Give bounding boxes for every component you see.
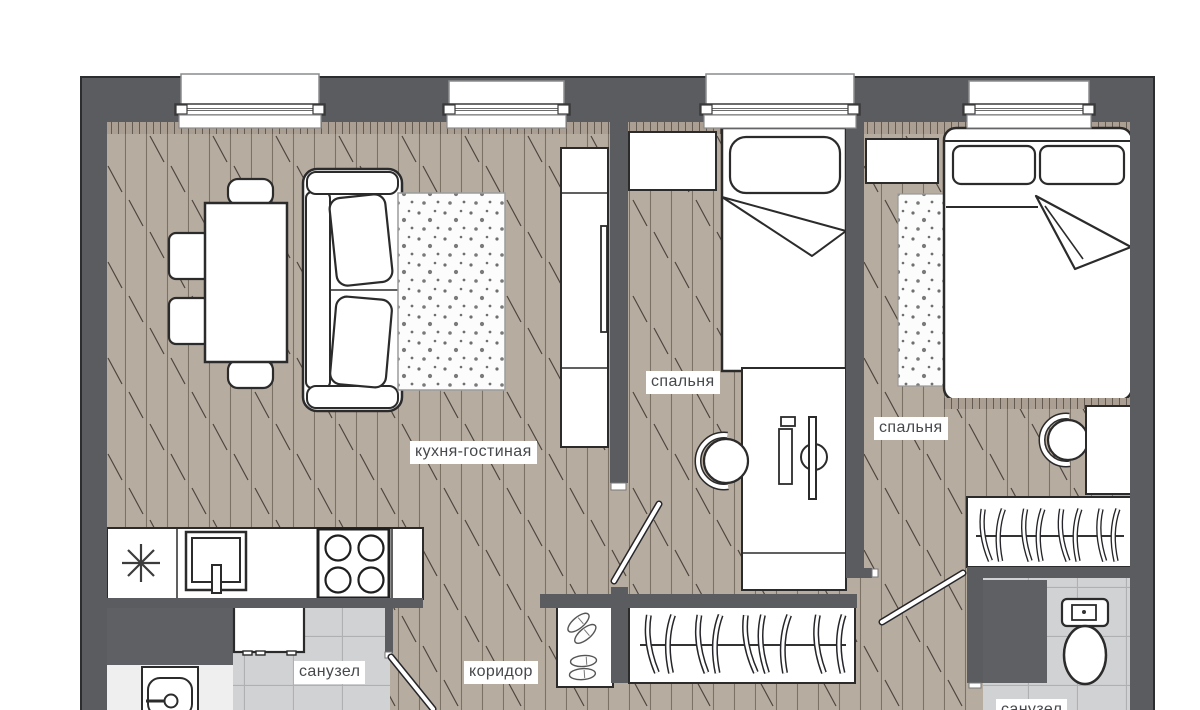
utility-block	[983, 580, 1047, 683]
wall-right	[1130, 76, 1155, 710]
dining-table	[205, 203, 287, 362]
sink-tap	[212, 565, 221, 593]
sofa-armrest	[307, 172, 398, 194]
window	[700, 74, 860, 128]
shoe-cabinet	[557, 602, 613, 687]
sofa	[303, 169, 402, 411]
bathroom-2	[983, 578, 1130, 710]
cabinet	[629, 132, 716, 190]
desk-2	[1086, 406, 1132, 494]
wall-corridor	[540, 594, 857, 608]
tv-screen	[601, 226, 607, 332]
bedroom-rug	[898, 194, 946, 386]
room-label-bedroom2: спальня	[874, 417, 948, 440]
monitor	[809, 417, 816, 499]
room-label-bedroom1: спальня	[646, 371, 720, 394]
double-bed	[944, 128, 1132, 400]
room-label-bathroom1: санузел	[294, 661, 365, 684]
corridor-wardrobe	[629, 605, 855, 683]
pillow	[730, 137, 840, 193]
kitchen-counter	[107, 528, 423, 599]
wall-bedroom1-bedroom2	[846, 122, 864, 568]
sofa-cushion	[329, 296, 392, 389]
room-label-corridor: коридор	[464, 661, 538, 684]
bedroom2-wardrobe	[967, 497, 1131, 567]
living-room-rug	[398, 193, 505, 390]
window	[443, 81, 570, 128]
washing-machine	[234, 603, 304, 655]
wall-bathroom1-door-jamb	[385, 608, 393, 653]
wall-left	[80, 76, 107, 710]
room-label-bathroom2: санузел	[996, 699, 1067, 710]
cabinet	[866, 139, 938, 183]
room-label-living: кухня-гостиная	[410, 441, 537, 464]
window	[175, 74, 325, 128]
pillow	[953, 146, 1035, 184]
bathroom-1	[107, 603, 390, 710]
utility-block	[107, 608, 233, 665]
floor-plan: кухня-гостиная спальня спальня санузел к…	[0, 0, 1200, 710]
floor-plan-drawing	[0, 0, 1200, 710]
toilet	[1062, 599, 1108, 684]
wall-living-bedroom1	[610, 122, 628, 483]
window	[963, 81, 1095, 128]
desk-1	[742, 368, 846, 590]
toilet-bowl	[1064, 626, 1106, 684]
sofa-cushion	[329, 193, 394, 286]
wall-kitchen-bathroom1	[107, 598, 423, 608]
dining-chair	[228, 360, 273, 388]
tv-unit	[561, 148, 608, 447]
single-bed	[722, 128, 846, 371]
stove	[318, 529, 389, 598]
sofa-armrest	[307, 386, 398, 408]
wall-bathroom2	[967, 578, 983, 683]
kitchen-sink	[186, 532, 246, 593]
dining-chair	[228, 179, 273, 205]
pillow	[1040, 146, 1124, 184]
bath-faucet-knob	[165, 695, 178, 708]
bathtub	[142, 667, 198, 710]
